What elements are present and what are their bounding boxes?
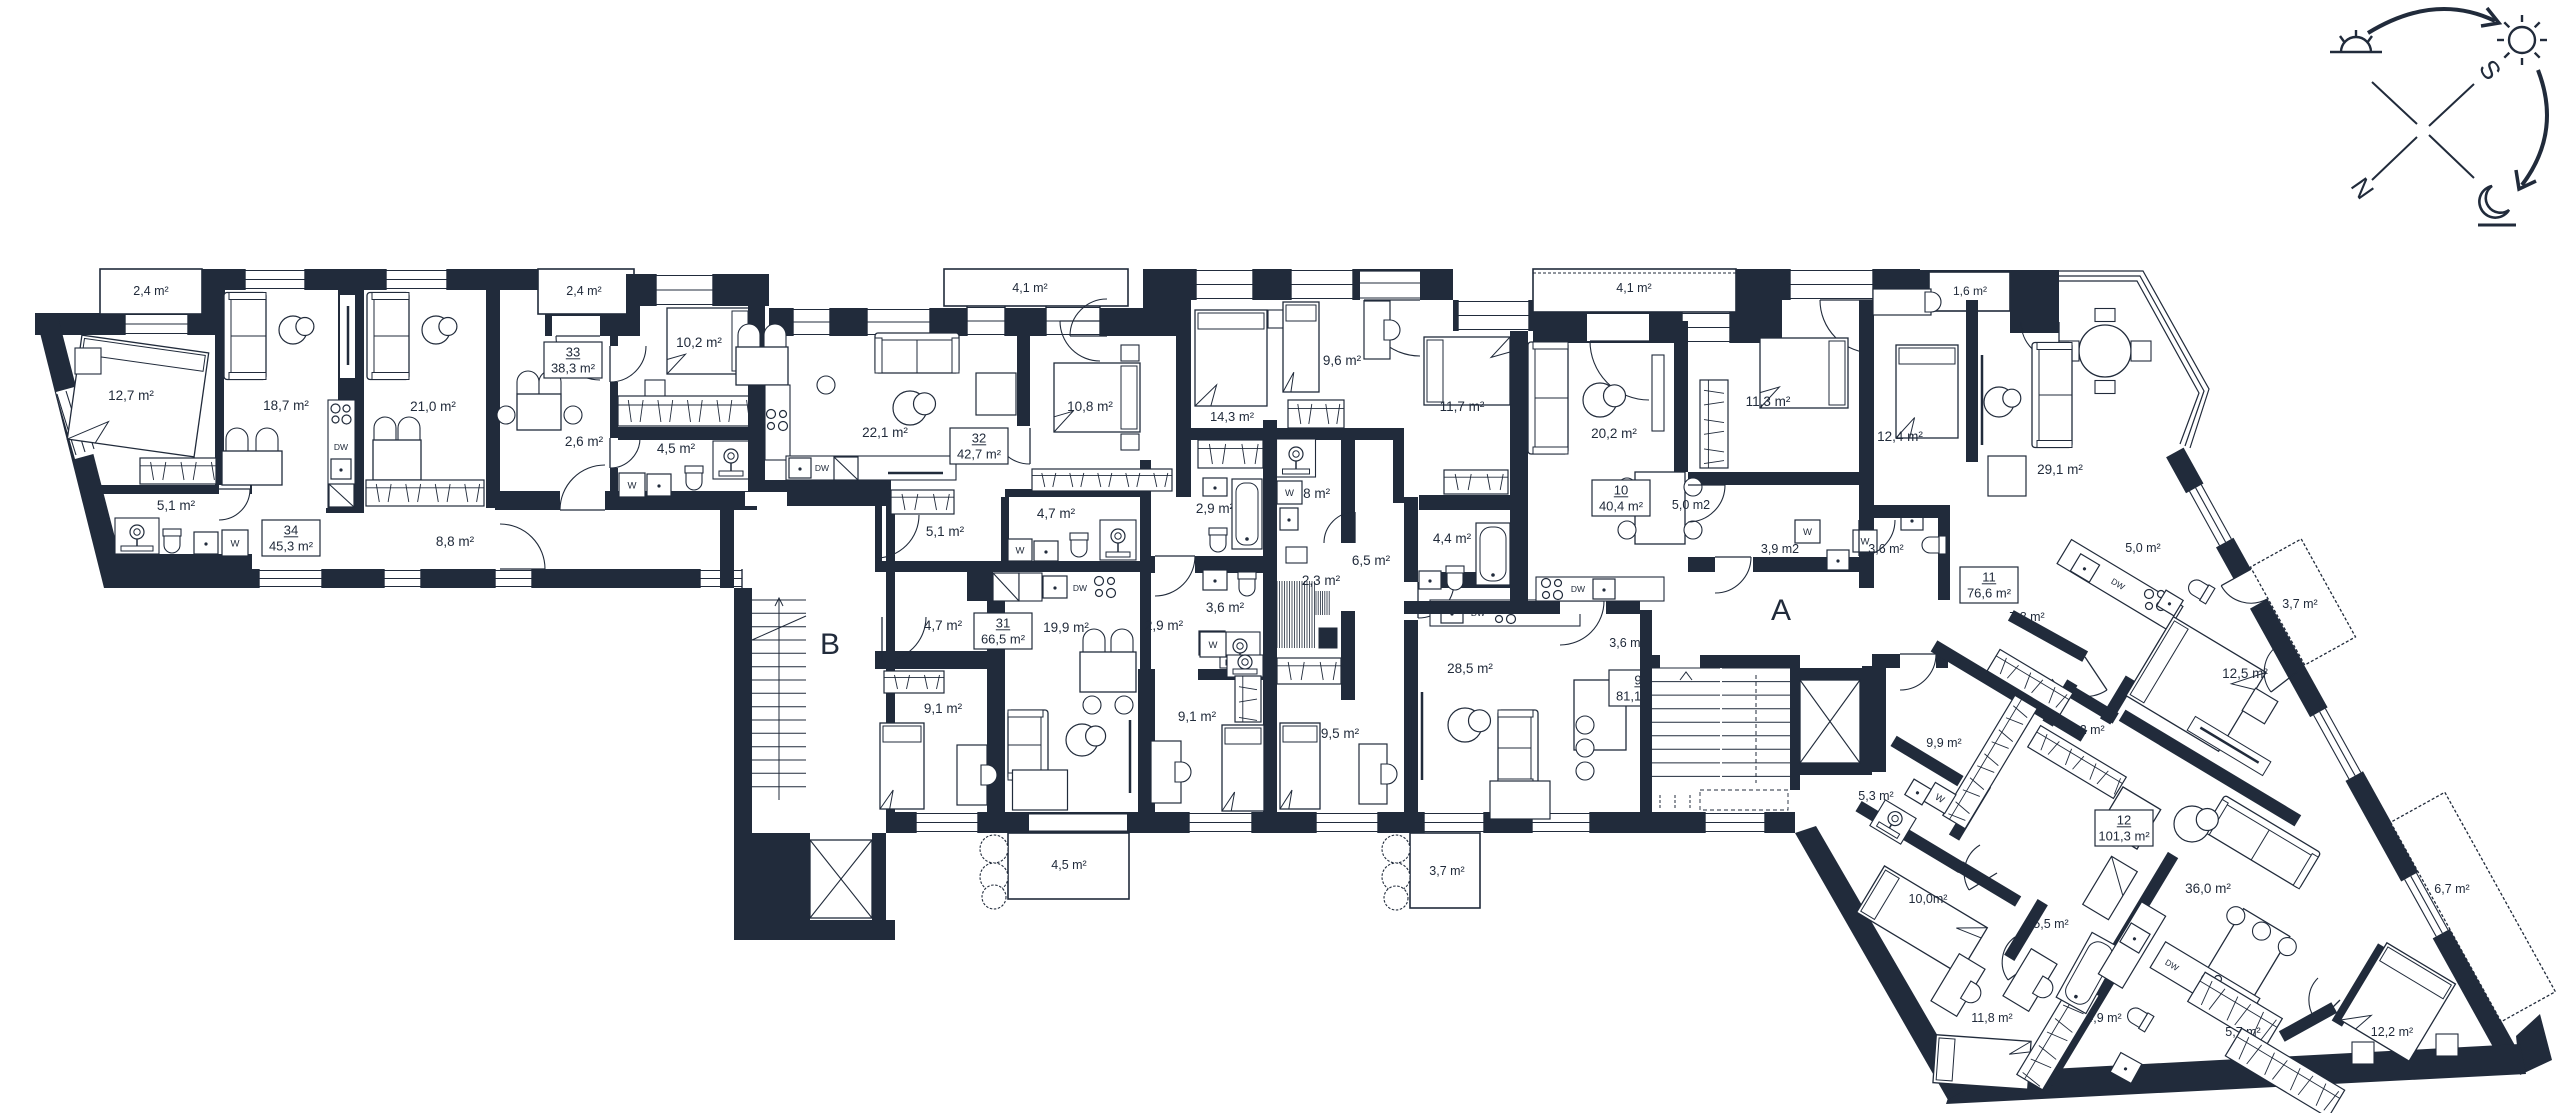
svg-text:5,3 m²: 5,3 m²: [1858, 789, 1893, 803]
svg-text:31: 31: [996, 616, 1010, 631]
svg-text:29,1 m²: 29,1 m²: [2037, 462, 2083, 477]
svg-text:6,5 m²: 6,5 m²: [1352, 553, 1391, 568]
svg-text:38,3 m²: 38,3 m²: [551, 361, 596, 376]
svg-text:40,4 m²: 40,4 m²: [1599, 499, 1644, 514]
svg-text:3,9 m2: 3,9 m2: [1761, 542, 1799, 556]
svg-text:10,8 m²: 10,8 m²: [1067, 399, 1113, 414]
svg-text:9,5 m²: 9,5 m²: [1321, 726, 1360, 741]
svg-text:4,4 m²: 4,4 m²: [1433, 531, 1472, 546]
svg-text:4,5 m²: 4,5 m²: [657, 441, 696, 456]
svg-text:19,9 m²: 19,9 m²: [1043, 620, 1089, 635]
svg-text:6,2 m²: 6,2 m²: [2069, 723, 2104, 737]
svg-text:5,1 m²: 5,1 m²: [926, 524, 965, 539]
svg-text:4,1 m²: 4,1 m²: [1012, 281, 1047, 295]
svg-text:DW: DW: [334, 442, 348, 452]
svg-text:W: W: [1209, 640, 1218, 651]
svg-text:DW: DW: [815, 463, 829, 473]
svg-text:12,2 m²: 12,2 m²: [2371, 1025, 2413, 1039]
svg-text:DW: DW: [1571, 584, 1585, 594]
svg-text:14,3 m²: 14,3 m²: [1210, 409, 1255, 424]
svg-text:6,7 m²: 6,7 m²: [2434, 882, 2469, 896]
svg-text:3,6 m²: 3,6 m²: [1206, 600, 1245, 615]
svg-text:11,3 m²: 11,3 m²: [1746, 394, 1791, 409]
svg-text:28,5 m²: 28,5 m²: [1447, 661, 1493, 676]
svg-text:20,2 m²: 20,2 m²: [1591, 426, 1637, 441]
svg-text:DW: DW: [1073, 583, 1087, 593]
svg-text:10,2 m²: 10,2 m²: [676, 335, 722, 350]
svg-text:45,3 m²: 45,3 m²: [269, 539, 314, 554]
svg-text:5,5 m²: 5,5 m²: [2033, 917, 2068, 931]
svg-text:3,6 m²: 3,6 m²: [1609, 636, 1644, 650]
svg-text:2,4 m²: 2,4 m²: [566, 284, 601, 298]
svg-text:W: W: [1803, 527, 1812, 538]
svg-text:33: 33: [566, 345, 580, 360]
svg-text:4,7 m²: 4,7 m²: [924, 618, 963, 633]
svg-text:1,6 m²: 1,6 m²: [1953, 284, 1987, 298]
svg-text:12: 12: [2117, 813, 2131, 828]
svg-text:5,0 m²: 5,0 m²: [2125, 541, 2160, 555]
svg-text:66,5 m²: 66,5 m²: [981, 632, 1026, 647]
svg-text:9,9 m²: 9,9 m²: [1926, 736, 1961, 750]
svg-text:34: 34: [284, 523, 298, 538]
svg-text:12,5 m²: 12,5 m²: [2222, 666, 2268, 681]
svg-text:4,9 m²: 4,9 m²: [2086, 1011, 2121, 1025]
svg-text:12,7 m²: 12,7 m²: [108, 388, 154, 403]
svg-text:4,1 m²: 4,1 m²: [1616, 281, 1651, 295]
svg-text:42,7 m²: 42,7 m²: [957, 447, 1002, 462]
svg-text:11,7 m²: 11,7 m²: [1440, 399, 1485, 414]
svg-text:2,3 m²: 2,3 m²: [1302, 573, 1341, 588]
svg-text:21,0 m²: 21,0 m²: [410, 399, 456, 414]
svg-text:22,1 m²: 22,1 m²: [862, 425, 908, 440]
svg-text:9,1 m²: 9,1 m²: [924, 701, 963, 716]
svg-text:11: 11: [1982, 570, 1996, 585]
svg-text:4,5 m²: 4,5 m²: [1051, 858, 1086, 872]
svg-text:2,6 m²: 2,6 m²: [565, 434, 604, 449]
svg-text:3,7 m²: 3,7 m²: [1429, 864, 1464, 878]
svg-text:8,8 m²: 8,8 m²: [436, 534, 475, 549]
svg-text:36,0 m²: 36,0 m²: [2185, 881, 2231, 896]
svg-text:10,0m²: 10,0m²: [1909, 892, 1948, 906]
svg-text:5,0 m2: 5,0 m2: [1672, 498, 1710, 512]
svg-text:5,1 m²: 5,1 m²: [157, 498, 196, 513]
svg-text:11,8 m²: 11,8 m²: [1971, 1011, 2012, 1025]
svg-text:12,4 m²: 12,4 m²: [1877, 429, 1923, 444]
svg-text:9,1 m²: 9,1 m²: [1178, 709, 1217, 724]
svg-text:W: W: [1016, 546, 1025, 557]
svg-text:3,7 m²: 3,7 m²: [2282, 597, 2317, 611]
svg-text:2,9 m²: 2,9 m²: [1145, 618, 1184, 633]
svg-text:2,9 m²: 2,9 m²: [1196, 501, 1235, 516]
svg-text:W: W: [231, 539, 240, 550]
svg-text:32: 32: [972, 431, 986, 446]
svg-text:W: W: [1285, 488, 1294, 499]
svg-text:B: B: [820, 628, 840, 661]
svg-text:76,6 m²: 76,6 m²: [1967, 586, 2012, 601]
svg-text:10: 10: [1614, 483, 1628, 498]
svg-text:4,7 m²: 4,7 m²: [1037, 506, 1076, 521]
svg-text:18,7 m²: 18,7 m²: [263, 398, 309, 413]
svg-text:101,3 m²: 101,3 m²: [2098, 829, 2150, 844]
svg-text:A: A: [1771, 594, 1791, 627]
svg-text:W: W: [628, 481, 637, 492]
svg-text:9,6 m²: 9,6 m²: [1323, 353, 1362, 368]
svg-text:2,4 m²: 2,4 m²: [133, 284, 168, 298]
